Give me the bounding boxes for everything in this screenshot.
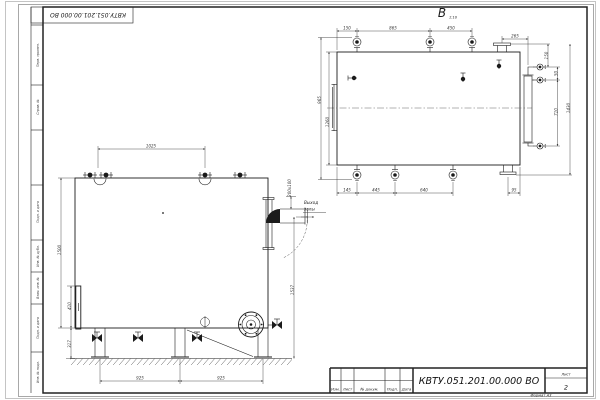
callout-text: золы (304, 207, 315, 212)
title-col-label: Подп. (387, 388, 398, 392)
drain-valve-icon (133, 332, 143, 342)
lifting-lug-icon (199, 179, 211, 185)
dim-label: 145 (343, 187, 351, 192)
inverted-designation: КВТУ.051.201.00.000 ВО (50, 11, 126, 18)
margin-cell-label: Подп. и дата (36, 201, 40, 223)
dim-label: 317 (67, 340, 72, 348)
burner-flange (239, 312, 264, 337)
margin-cell-label: Инв. № подл. (36, 361, 40, 383)
margin-cell-label: Инв. № дубл. (36, 245, 40, 267)
drawing-canvas: Перв. примен. Справ. № Подп. и дата Инв.… (0, 0, 600, 400)
flange-stub-bottom (500, 165, 516, 175)
front-view: 200х100 Выход золы (57, 143, 326, 384)
dim-label: 265 (511, 33, 519, 38)
center-mark (162, 212, 164, 214)
dimensions-front-right: 1537 (290, 217, 308, 359)
view-label: В (438, 6, 446, 20)
dimensions-front-left: 1500 410 317 (57, 178, 75, 359)
lifting-lug-icon (94, 179, 106, 185)
gauge-valve-icon (534, 77, 546, 83)
side-valve (268, 319, 282, 329)
dim-label: 865 (389, 25, 397, 30)
level-gauge (523, 64, 546, 149)
format-note: Формат А3 (530, 394, 552, 398)
margin-stamp-strip: Перв. примен. Справ. № Подп. и дата Инв.… (31, 7, 43, 393)
title-col-label: Лист (342, 388, 353, 392)
dim-label: 1537 (290, 284, 295, 295)
duct-dimension: 200х100 (286, 179, 296, 209)
dim-label: 150 (544, 51, 549, 59)
dim-label: 1430 (566, 102, 571, 113)
boiler-body-side (337, 52, 520, 165)
valve-icon (83, 172, 97, 178)
side-view: В 1:10 (317, 6, 572, 196)
dim-label: 965 (317, 96, 322, 104)
valve-icon (468, 37, 476, 52)
thermometer-fitting-icon (348, 76, 357, 81)
callout-text: Выход (304, 200, 318, 205)
sheet-number: 2 (564, 384, 568, 392)
dim-label: 1260 (325, 116, 330, 127)
drawing-sheet: Перв. примен. Справ. № Подп. и дата Инв.… (0, 0, 600, 400)
valve-icon (233, 172, 247, 178)
drain-valve-icon (92, 332, 102, 342)
margin-cell-label: Справ. № (36, 99, 40, 115)
top-left-stamp: КВТУ.051.201.00.000 ВО (31, 7, 133, 23)
dimensions-front-top: 1025 (98, 143, 205, 168)
dim-label: 1025 (146, 143, 157, 148)
dim-label: 150 (343, 25, 351, 30)
gauge-valve-icon (534, 64, 546, 70)
valve-icon (353, 165, 361, 180)
valve-icon (426, 37, 434, 52)
dim-label: 95 (511, 187, 517, 192)
valve-icon (99, 172, 113, 178)
dim-label: 925 (217, 375, 225, 380)
title-col-label: Дата (401, 388, 412, 392)
valve-icon (449, 165, 457, 180)
valve-icon (461, 73, 466, 82)
margin-cell-label: Подп. и дата (36, 317, 40, 339)
flange-stub-top (494, 43, 511, 52)
dim-label: 640 (420, 187, 428, 192)
boiler-body-front (75, 178, 268, 328)
ash-outlet-elbow (263, 198, 308, 259)
valve-icon (198, 172, 212, 178)
gauge-valve-icon (534, 143, 546, 149)
title-col-label: Изм. (331, 388, 340, 392)
dimensions-side-left: 965 1260 (317, 38, 352, 180)
valve-icon (391, 165, 399, 180)
valve-icon (353, 37, 361, 52)
sheet-label: Лист (560, 373, 571, 377)
dim-label: 1500 (57, 244, 62, 255)
view-label-scale: 1:10 (449, 16, 458, 20)
support-legs (91, 328, 272, 357)
dim-label: 450 (447, 25, 455, 30)
dim-label: 200х100 (287, 179, 292, 197)
valve-icon (272, 319, 282, 329)
dimensions-side-bottom: 145 445 640 95 (337, 167, 520, 196)
dim-label: 925 (136, 375, 144, 380)
dim-label: 710 (553, 108, 558, 116)
margin-cell-label: Перв. примен. (36, 43, 40, 67)
dim-label: 50 (553, 71, 558, 77)
drawing-designation: КВТУ.051.201.00.000 ВО (419, 376, 540, 387)
margin-cell-label: Взам. инв. № (36, 277, 40, 299)
title-col-label: № докум. (359, 388, 378, 392)
ground-hatching (70, 359, 292, 366)
dim-label: 445 (372, 187, 380, 192)
valve-icon (497, 60, 502, 69)
dim-label: 410 (67, 302, 72, 310)
drain-valve-icon (192, 332, 202, 342)
